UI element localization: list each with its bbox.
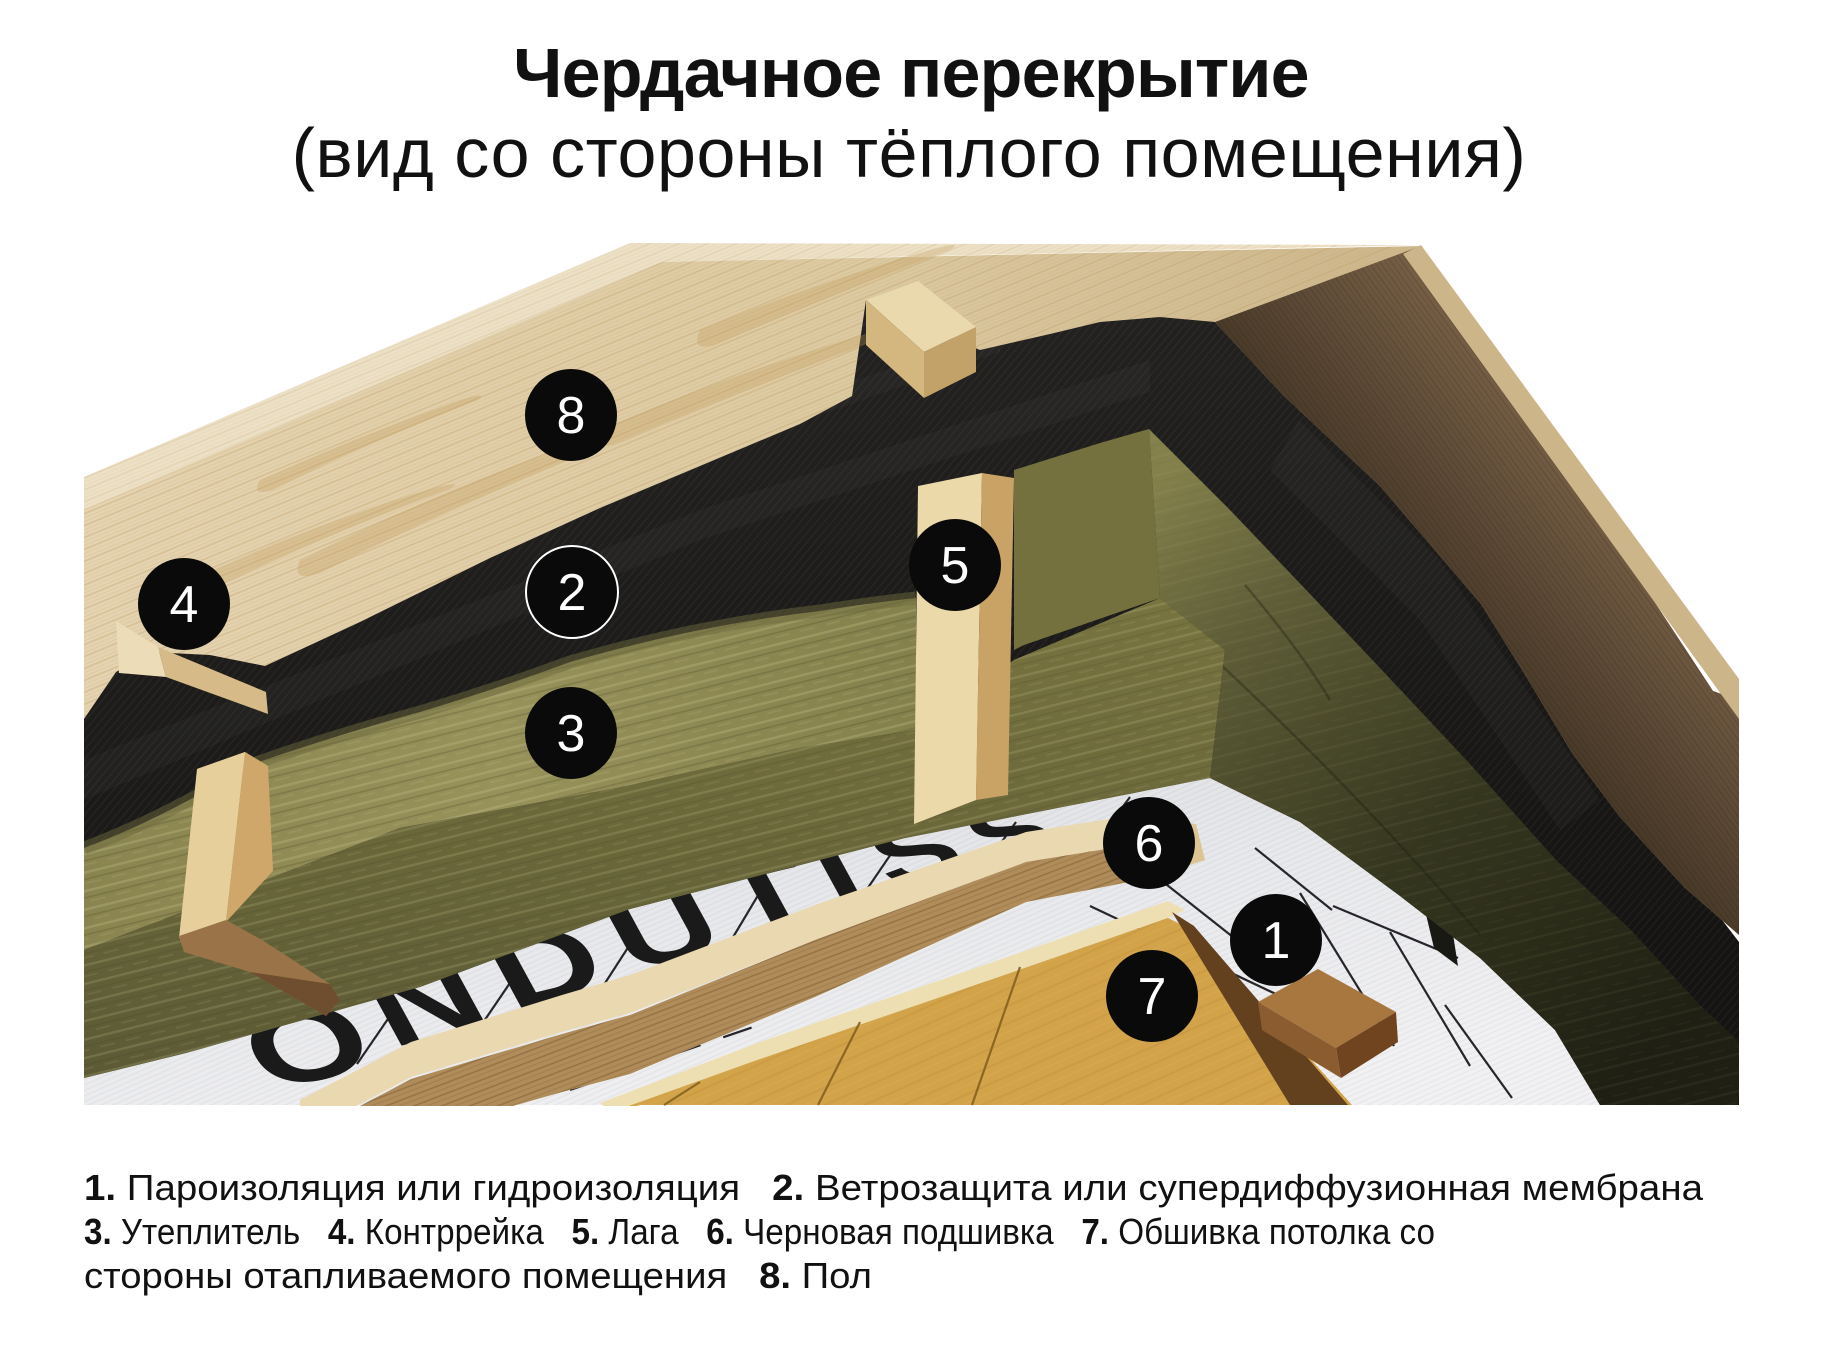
svg-text:6: 6 [1135,815,1164,873]
svg-text:Чердачное перекрытие: Чердачное перекрытие [513,34,1309,112]
svg-text:3: 3 [557,705,586,763]
svg-text:2: 2 [558,564,587,622]
svg-text:стороны отапливаемого помещени: стороны отапливаемого помещения 8. Пол [84,1255,872,1296]
svg-text:1. Пароизоляция или гидроизоля: 1. Пароизоляция или гидроизоляция 2. Вет… [84,1167,1704,1208]
svg-text:(вид со стороны тёплого помеще: (вид со стороны тёплого помещения) [292,114,1527,192]
svg-text:7: 7 [1138,968,1167,1026]
svg-text:5: 5 [941,537,970,595]
svg-text:3. Утеплитель 4. Контррейка: 3. Утеплитель 4. Контррейка 5. Лага 6. Ч… [84,1211,1435,1252]
svg-text:1: 1 [1262,912,1291,970]
svg-text:8: 8 [557,387,586,445]
svg-text:4: 4 [170,576,199,634]
